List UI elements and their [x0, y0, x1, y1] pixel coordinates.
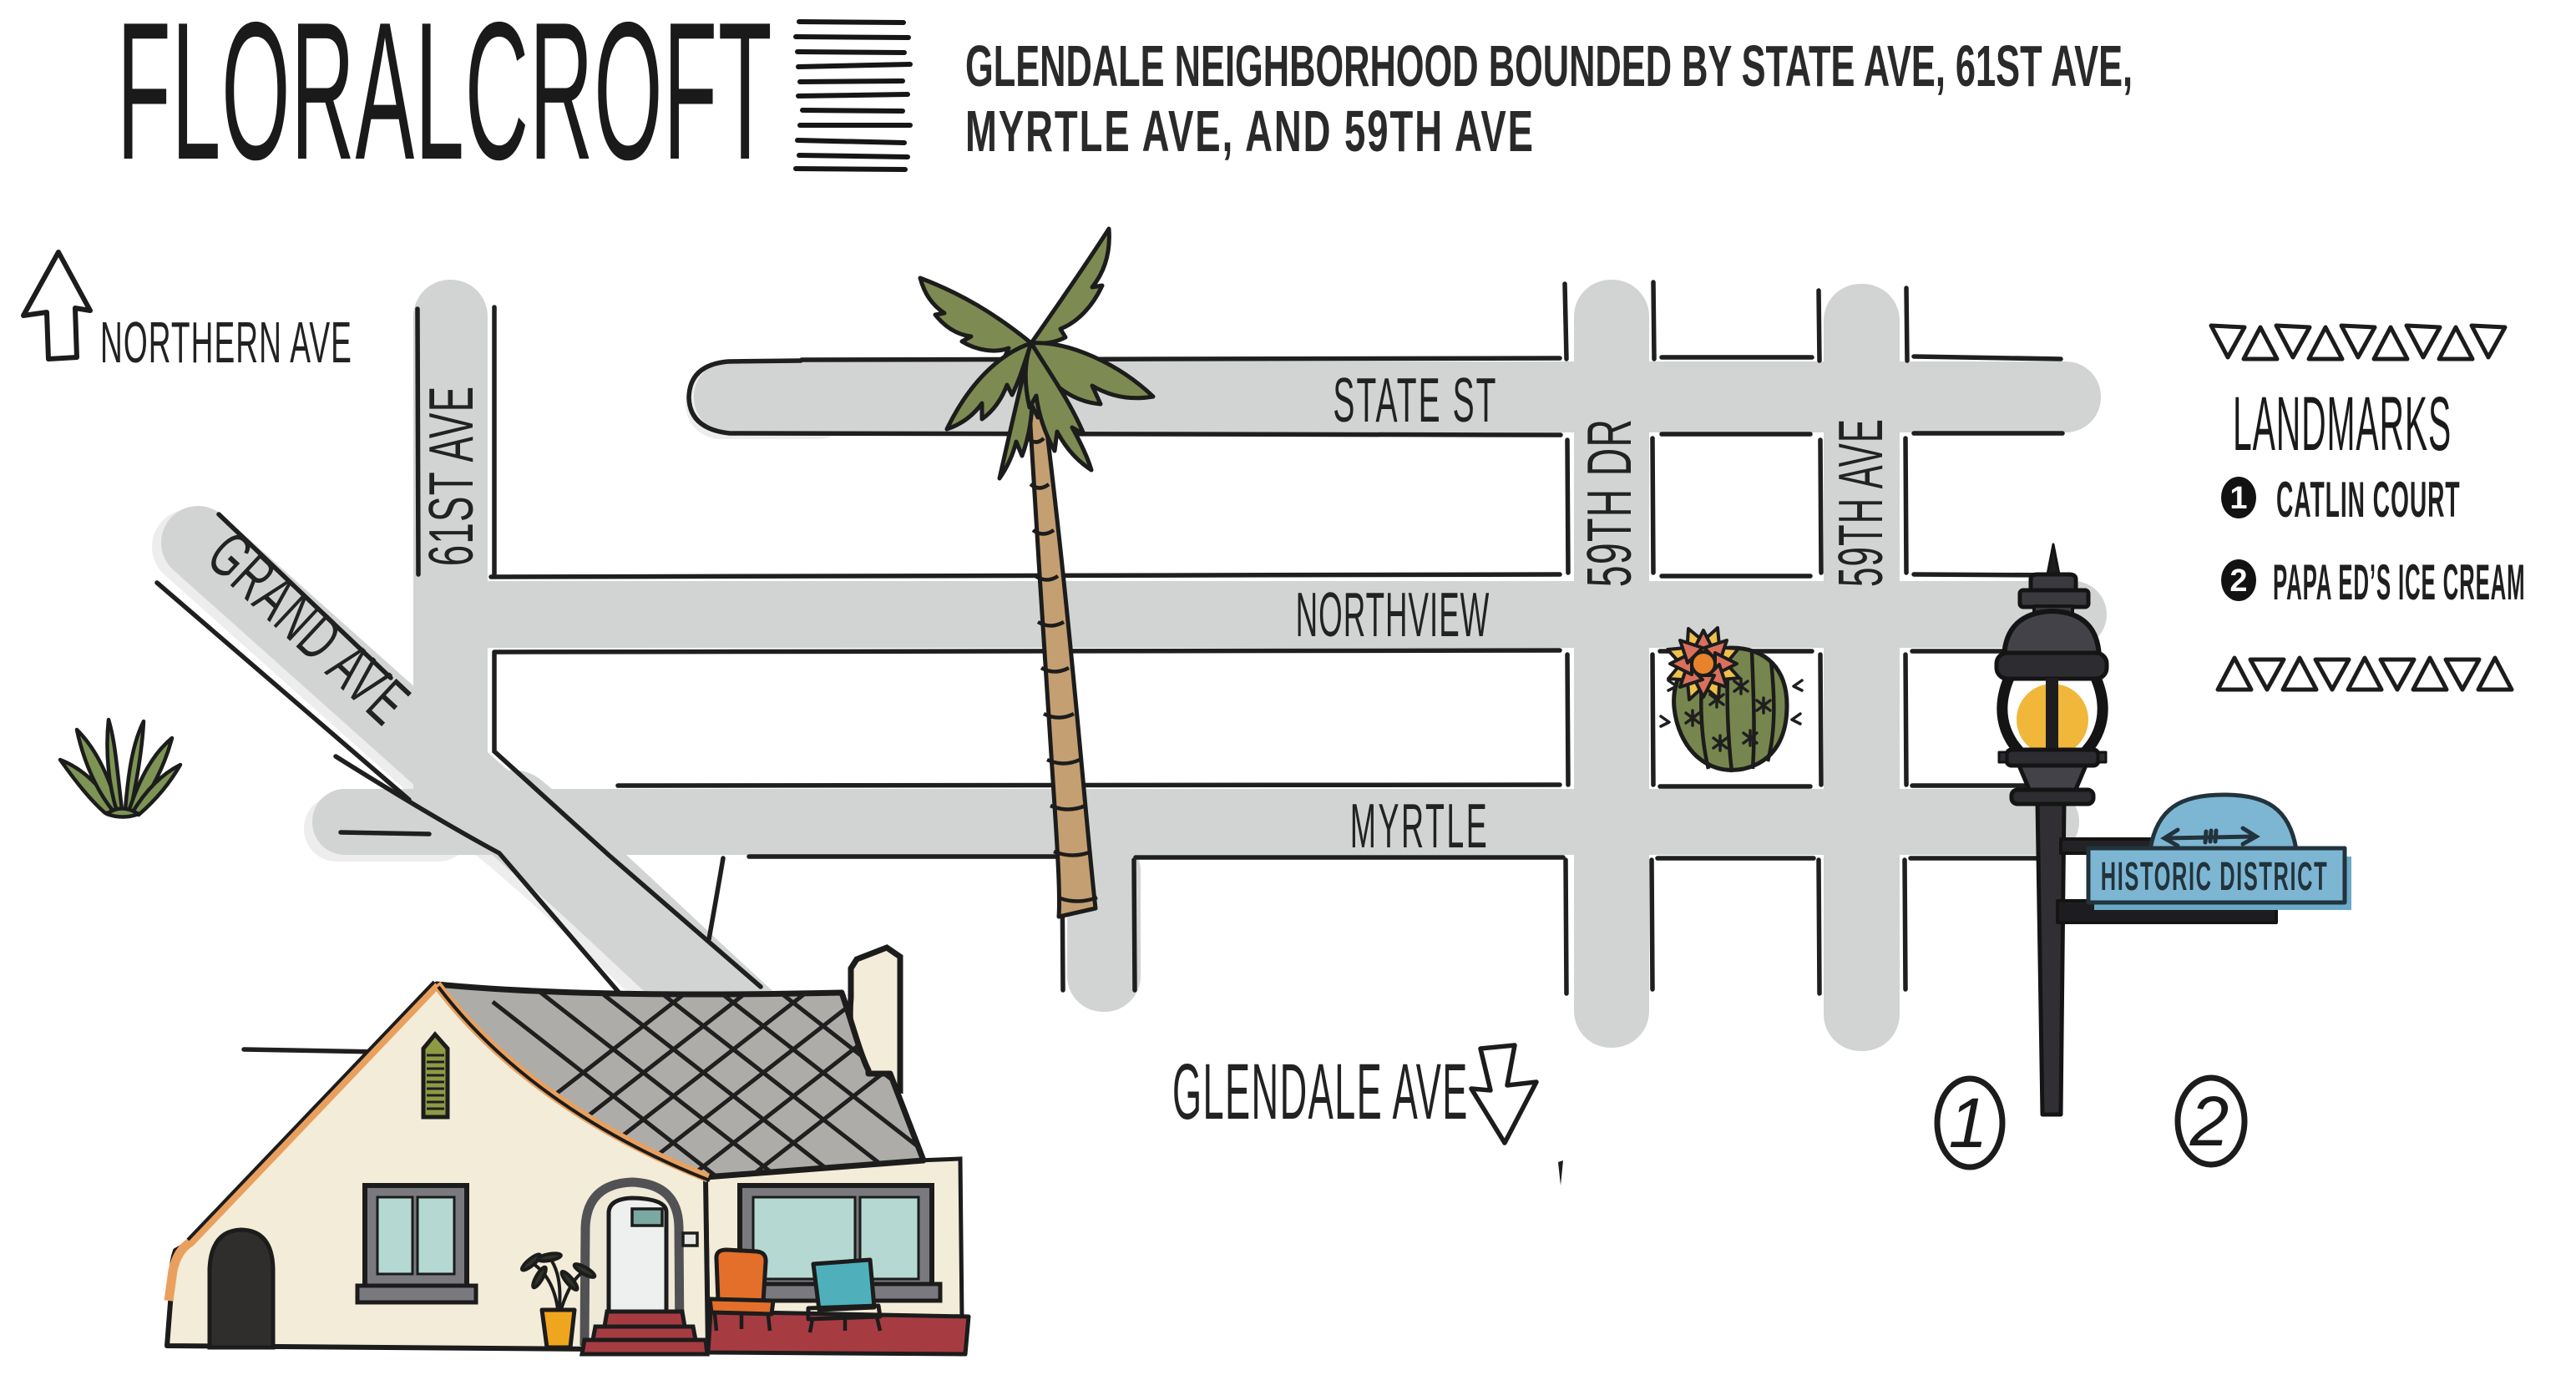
svg-text:NORTHVIEW: NORTHVIEW: [1296, 580, 1490, 650]
svg-text:GLENDALE AVE: GLENDALE AVE: [1172, 1047, 1469, 1135]
svg-text:FLORALCROFT: FLORALCROFT: [117, 0, 772, 200]
svg-text:GLENDALE NEIGHBORHOOD BOUNDED: GLENDALE NEIGHBORHOOD BOUNDED BY STATE A…: [965, 33, 2133, 99]
svg-text:59TH DR: 59TH DR: [1576, 418, 1645, 587]
svg-text:2: 2: [2229, 564, 2247, 599]
svg-text:PAPA ED’S ICE CREAM: PAPA ED’S ICE CREAM: [2273, 554, 2525, 610]
svg-text:LANDMARKS: LANDMARKS: [2233, 382, 2452, 468]
svg-text:1: 1: [1949, 1084, 1988, 1162]
svg-text:CATLIN COURT: CATLIN COURT: [2276, 472, 2461, 528]
svg-text:HISTORIC DISTRICT: HISTORIC DISTRICT: [2101, 855, 2328, 900]
svg-text:1: 1: [2229, 481, 2247, 516]
svg-text:61ST AVE: 61ST AVE: [418, 386, 487, 567]
svg-text:NORTHERN AVE: NORTHERN AVE: [100, 309, 352, 375]
svg-text:2: 2: [2189, 1082, 2229, 1160]
svg-text:STATE ST: STATE ST: [1333, 365, 1497, 435]
svg-text:59TH AVE: 59TH AVE: [1825, 418, 1895, 587]
svg-text:MYRTLE AVE, AND 59TH AVE: MYRTLE AVE, AND 59TH AVE: [965, 99, 1535, 164]
svg-text:MYRTLE: MYRTLE: [1350, 791, 1489, 862]
